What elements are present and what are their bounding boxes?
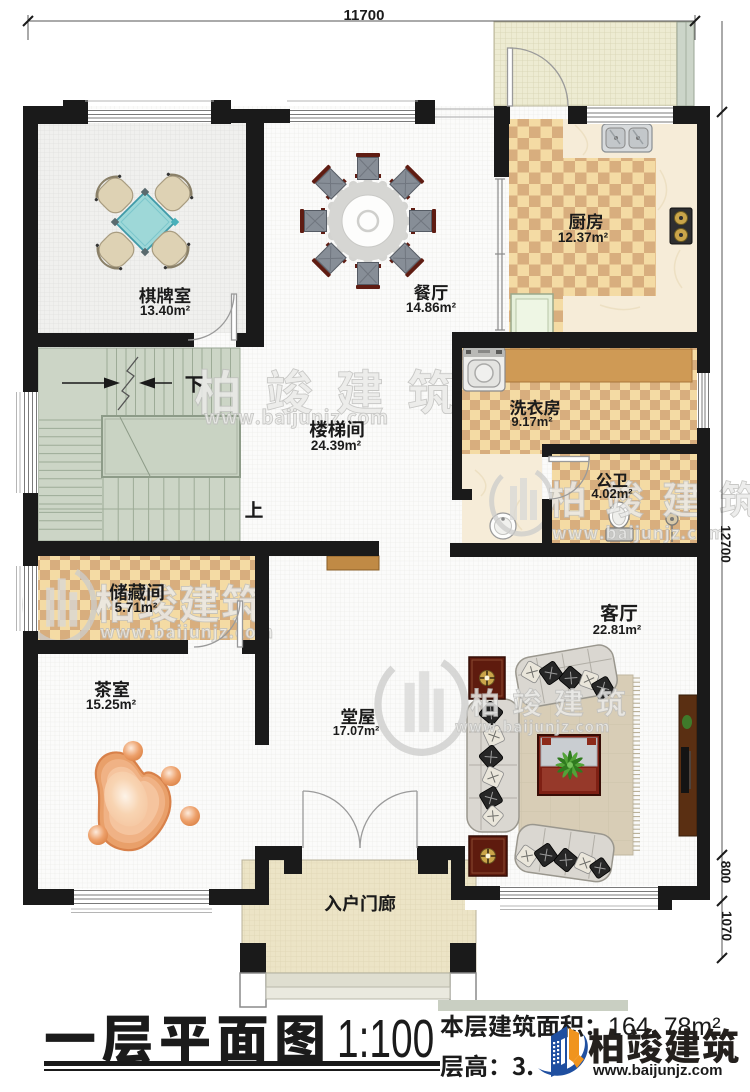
svg-text:5.71m²: 5.71m² [115, 600, 158, 615]
svg-text:12.37m²: 12.37m² [558, 230, 609, 245]
svg-text:4.02m²: 4.02m² [591, 486, 633, 501]
svg-text:22.81m²: 22.81m² [593, 622, 642, 637]
svg-text:1070: 1070 [719, 911, 734, 941]
svg-text:12700: 12700 [718, 525, 733, 563]
svg-text:24.39m²: 24.39m² [311, 438, 362, 453]
svg-text:13.40m²: 13.40m² [140, 303, 191, 318]
svg-text:17.07m²: 17.07m² [333, 724, 380, 738]
svg-text:15.25m²: 15.25m² [86, 697, 137, 712]
svg-text:14.86m²: 14.86m² [406, 300, 457, 315]
svg-text:11700: 11700 [344, 7, 385, 24]
svg-text:9.17m²: 9.17m² [511, 414, 553, 429]
svg-text:1:100: 1:100 [337, 1008, 434, 1069]
svg-text:www.baijunjz.com: www.baijunjz.com [592, 1062, 722, 1079]
svg-text:800: 800 [718, 861, 733, 884]
